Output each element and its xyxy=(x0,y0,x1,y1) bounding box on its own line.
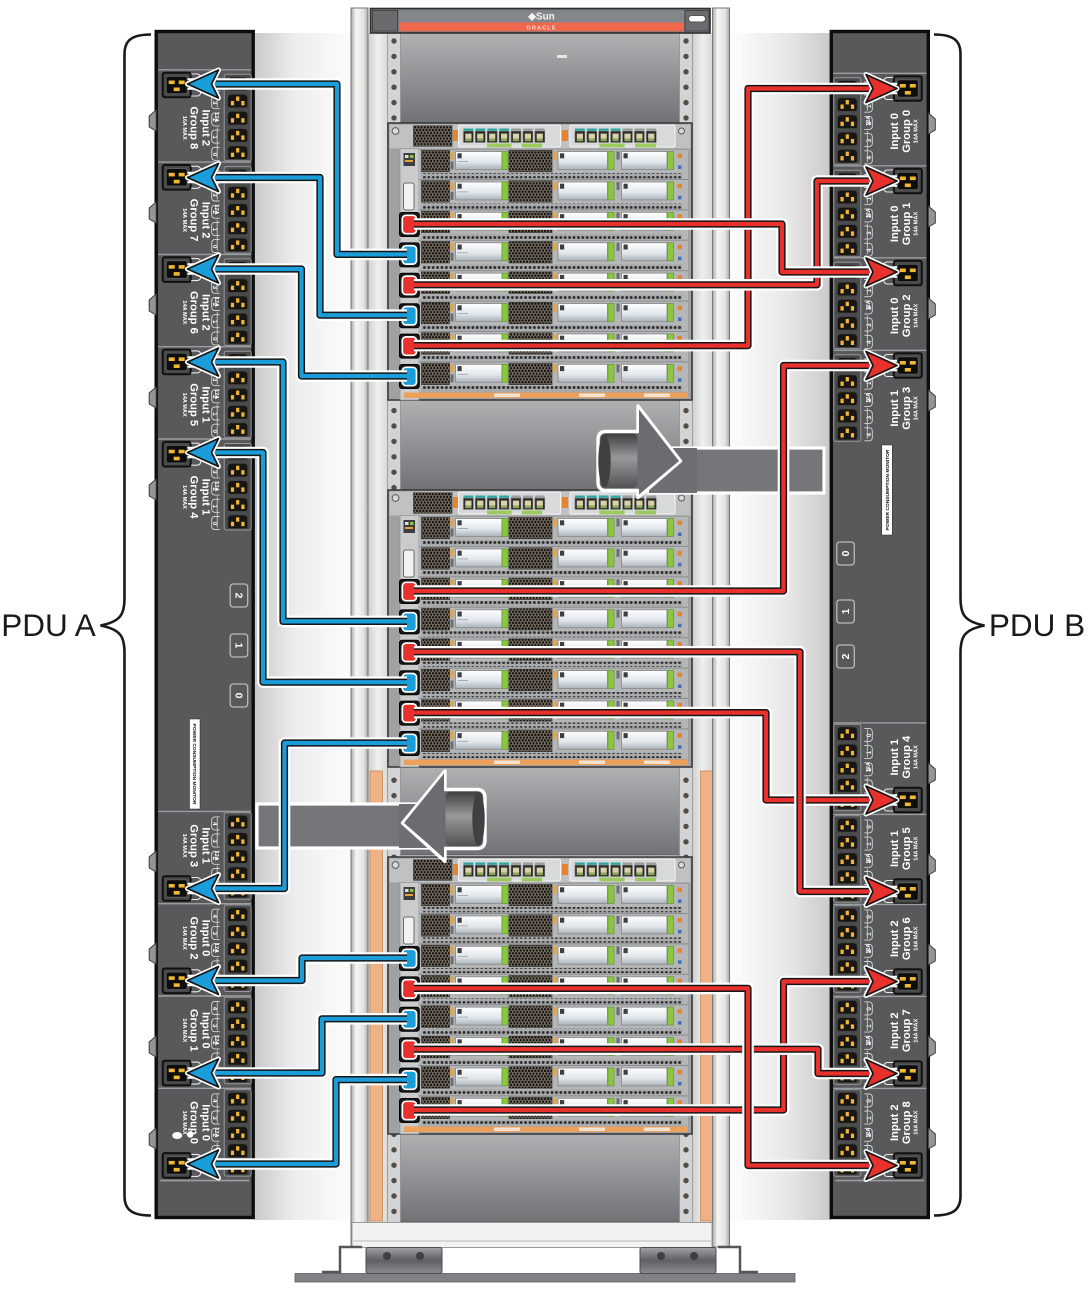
svg-text:Input 1: Input 1 xyxy=(200,386,212,423)
svg-text:Input 1: Input 1 xyxy=(889,739,901,776)
svg-text:12A: 12A xyxy=(213,943,219,953)
svg-text:Group 6: Group 6 xyxy=(188,291,200,334)
svg-text:14A MAX: 14A MAX xyxy=(913,212,919,236)
svg-text:◆Sun: ◆Sun xyxy=(527,12,555,23)
svg-text:16A MAX: 16A MAX xyxy=(913,1110,919,1134)
svg-text:14A MAX: 14A MAX xyxy=(181,926,187,950)
svg-text:Group 5: Group 5 xyxy=(188,383,200,426)
svg-text:Input 2: Input 2 xyxy=(200,202,212,239)
svg-text:Input 1: Input 1 xyxy=(200,479,212,516)
svg-text:14A MAX: 14A MAX xyxy=(913,119,919,143)
svg-text:14A MAX: 14A MAX xyxy=(913,836,919,860)
svg-text:PDU B: PDU B xyxy=(989,607,1085,643)
svg-text:Input 0: Input 0 xyxy=(200,1012,212,1049)
svg-text:14A MAX: 14A MAX xyxy=(913,926,919,950)
svg-text:2: 2 xyxy=(232,593,244,599)
svg-text:12A: 12A xyxy=(866,1128,872,1138)
svg-text:12A: 12A xyxy=(213,297,219,307)
svg-text:14A MAX: 14A MAX xyxy=(913,396,919,420)
svg-text:Group 7: Group 7 xyxy=(901,1009,913,1052)
svg-text:Input 1: Input 1 xyxy=(889,390,901,427)
svg-text:Group 1: Group 1 xyxy=(901,202,913,245)
svg-text:Input 0: Input 0 xyxy=(889,297,901,334)
svg-text:2: 2 xyxy=(840,653,852,659)
svg-text:Input 1: Input 1 xyxy=(889,830,901,867)
svg-text:Input 2: Input 2 xyxy=(200,294,212,331)
svg-text:14A MAX: 14A MAX xyxy=(913,304,919,328)
svg-text:12A: 12A xyxy=(866,116,872,126)
svg-text:16A MAX: 16A MAX xyxy=(181,116,187,140)
svg-text:Input 1: Input 1 xyxy=(200,827,212,864)
svg-text:12A: 12A xyxy=(866,300,872,310)
svg-text:POWER CONSUMPTION MONITOR: POWER CONSUMPTION MONITOR xyxy=(885,449,891,530)
svg-text:0: 0 xyxy=(840,550,852,556)
svg-text:12A: 12A xyxy=(866,393,872,403)
svg-text:Group 3: Group 3 xyxy=(188,824,200,867)
svg-text:Input 2: Input 2 xyxy=(889,1012,901,1049)
svg-text:1: 1 xyxy=(840,608,852,614)
svg-text:Group 0: Group 0 xyxy=(188,1101,200,1144)
svg-text:12A: 12A xyxy=(866,208,872,218)
svg-text:1: 1 xyxy=(232,643,244,649)
svg-text:Input 0: Input 0 xyxy=(889,205,901,242)
svg-text:12A: 12A xyxy=(866,1036,872,1046)
svg-text:Group 8: Group 8 xyxy=(901,1101,913,1144)
svg-text:Group 2: Group 2 xyxy=(901,294,913,337)
svg-text:Input 0: Input 0 xyxy=(889,113,901,150)
svg-text:Group 4: Group 4 xyxy=(901,735,913,779)
svg-text:12A: 12A xyxy=(213,205,219,215)
svg-text:12A: 12A xyxy=(213,851,219,861)
svg-text:Input 0: Input 0 xyxy=(200,920,212,957)
svg-text:14A MAX: 14A MAX xyxy=(181,485,187,509)
svg-text:Group 1: Group 1 xyxy=(188,1009,200,1052)
svg-text:Group 5: Group 5 xyxy=(901,827,913,870)
svg-text:12A: 12A xyxy=(213,389,219,399)
svg-text:14A MAX: 14A MAX xyxy=(181,1018,187,1042)
svg-text:14A MAX: 14A MAX xyxy=(913,745,919,769)
svg-text:Input 0: Input 0 xyxy=(200,1104,212,1141)
svg-text:Group 2: Group 2 xyxy=(188,917,200,960)
svg-text:PDU A: PDU A xyxy=(1,607,96,643)
svg-text:Group 6: Group 6 xyxy=(901,917,913,960)
svg-text:POWER CONSUMPTION MONITOR: POWER CONSUMPTION MONITOR xyxy=(191,724,197,805)
svg-text:14A MAX: 14A MAX xyxy=(181,393,187,417)
svg-text:12A: 12A xyxy=(213,112,219,122)
svg-text:Group 7: Group 7 xyxy=(188,199,200,242)
svg-text:14A MAX: 14A MAX xyxy=(913,1018,919,1042)
svg-text:14A MAX: 14A MAX xyxy=(181,1111,187,1135)
svg-text:0: 0 xyxy=(232,693,244,699)
svg-text:ORACLE: ORACLE xyxy=(526,25,556,31)
svg-text:Group 4: Group 4 xyxy=(188,476,200,520)
svg-text:12A: 12A xyxy=(213,482,219,492)
svg-text:14A MAX: 14A MAX xyxy=(181,208,187,232)
svg-text:14A MAX: 14A MAX xyxy=(181,300,187,324)
svg-text:Group 3: Group 3 xyxy=(901,387,913,430)
svg-text:12A: 12A xyxy=(866,762,872,772)
svg-text:Input 2: Input 2 xyxy=(889,1104,901,1141)
svg-text:12A: 12A xyxy=(213,1035,219,1045)
svg-text:Group 8: Group 8 xyxy=(188,106,200,149)
svg-text:Input 2: Input 2 xyxy=(200,109,212,146)
svg-text:Input 2: Input 2 xyxy=(889,920,901,957)
svg-text:12A: 12A xyxy=(866,944,872,954)
svg-text:14A MAX: 14A MAX xyxy=(181,834,187,858)
svg-text:Group 0: Group 0 xyxy=(901,110,913,153)
svg-text:12A: 12A xyxy=(866,854,872,864)
svg-text:12A: 12A xyxy=(213,1128,219,1138)
